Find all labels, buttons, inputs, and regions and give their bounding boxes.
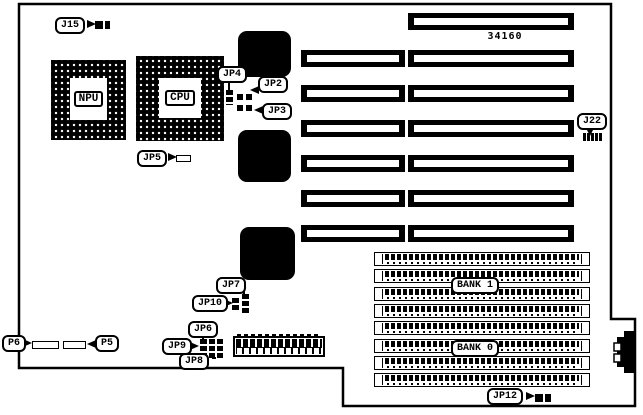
jp5-pointer xyxy=(168,153,177,161)
expansion-slot xyxy=(301,120,405,137)
expansion-slot xyxy=(408,190,574,207)
label-jp8: JP8 xyxy=(179,353,209,370)
label-jp10: JP10 xyxy=(192,295,228,312)
simm-socket xyxy=(374,321,590,335)
jp12-jumper xyxy=(535,394,551,402)
cpu-socket: CPU xyxy=(136,56,224,141)
simm-socket xyxy=(374,252,590,266)
keyboard-connector-pin xyxy=(614,354,621,362)
cpu-label: CPU xyxy=(165,90,195,106)
label-p5: P5 xyxy=(95,335,119,352)
expansion-slot xyxy=(301,190,405,207)
simm-contacts xyxy=(385,306,579,316)
qfp-chip-3 xyxy=(240,227,295,280)
jp5-jumper xyxy=(176,155,191,162)
expansion-slot xyxy=(408,120,574,137)
part-number: 34160 xyxy=(470,31,540,42)
cpu-socket-center: CPU xyxy=(159,78,201,118)
bank1-label: BANK 1 xyxy=(451,277,499,294)
simm-contacts xyxy=(385,254,579,264)
qfp-chip-2 xyxy=(238,130,291,182)
dip-switch-block xyxy=(233,336,325,357)
p6-connector xyxy=(32,341,59,349)
jp12-pointer xyxy=(526,392,535,400)
expansion-slot xyxy=(408,155,574,172)
npu-socket-center: NPU xyxy=(70,78,107,120)
simm-contacts xyxy=(385,323,579,333)
label-jp6: JP6 xyxy=(188,321,218,338)
expansion-slot xyxy=(408,225,574,242)
p5-connector xyxy=(63,341,86,349)
label-j22: J22 xyxy=(577,113,607,130)
dip-switch-positions xyxy=(236,347,322,354)
jp6-pins xyxy=(209,339,215,359)
j15-pointer xyxy=(87,20,96,28)
jp2-jumper xyxy=(237,94,253,100)
jp8-pins xyxy=(217,339,223,359)
expansion-slot xyxy=(301,50,405,67)
expansion-slot xyxy=(408,13,574,30)
expansion-slot xyxy=(408,85,574,102)
label-jp7: JP7 xyxy=(216,277,246,294)
label-p6: P6 xyxy=(2,335,26,352)
label-jp2: JP2 xyxy=(258,76,288,93)
j15-jumper xyxy=(95,21,110,29)
keyboard-connector-pin xyxy=(614,343,621,351)
jp3-jumper xyxy=(237,105,253,111)
simm-socket xyxy=(374,356,590,370)
label-jp5: JP5 xyxy=(137,150,167,167)
keyboard-connector-icon xyxy=(617,331,635,373)
expansion-slot xyxy=(301,225,405,242)
expansion-slot xyxy=(408,50,574,67)
jp4-pins xyxy=(226,90,233,105)
npu-socket: NPU xyxy=(51,60,126,140)
jp7-pins xyxy=(242,294,249,314)
jp10-pins xyxy=(232,298,239,311)
simm-socket xyxy=(374,373,590,387)
expansion-slot xyxy=(301,155,405,172)
jp8-leader xyxy=(212,357,216,359)
simm-contacts xyxy=(385,375,579,385)
label-j15: J15 xyxy=(55,17,85,34)
expansion-slot xyxy=(301,85,405,102)
label-jp12: JP12 xyxy=(487,388,523,405)
label-jp4: JP4 xyxy=(217,66,247,83)
bank0-label: BANK 0 xyxy=(451,340,499,357)
label-jp3: JP3 xyxy=(262,103,292,120)
npu-label: NPU xyxy=(74,91,104,107)
simm-contacts xyxy=(385,358,579,368)
simm-socket xyxy=(374,304,590,318)
motherboard-diagram: 34160 NPU CPU BANK 1 BANK 0 J15 JP4 xyxy=(0,0,643,415)
